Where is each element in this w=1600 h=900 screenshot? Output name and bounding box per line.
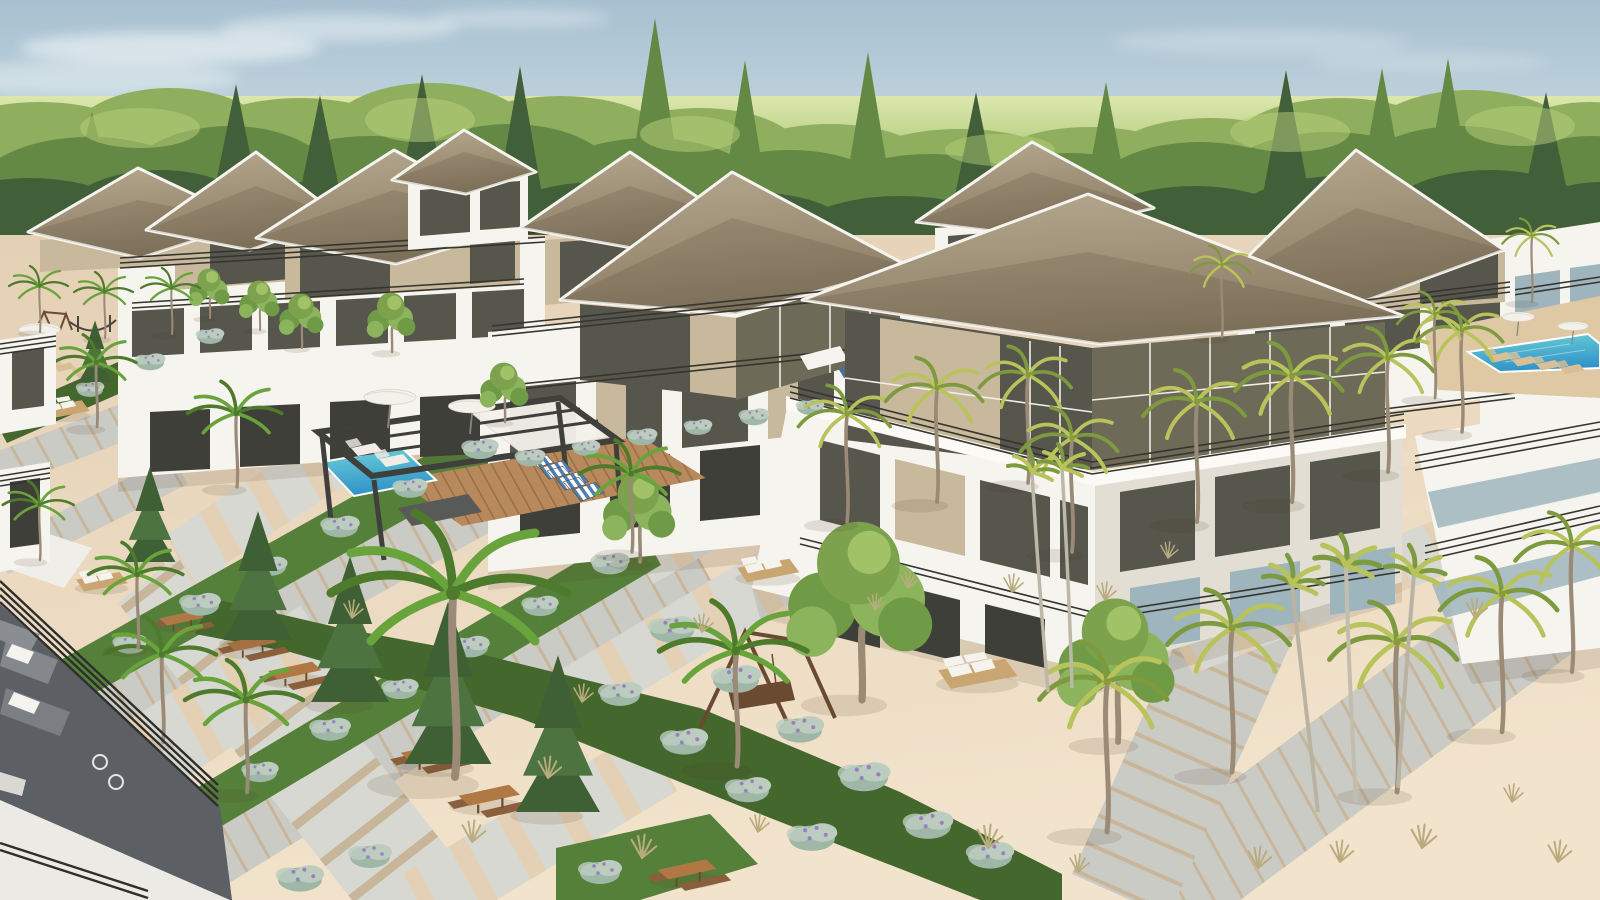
- resort-rendering: Aerial 3D architectural rendering of a t…: [0, 0, 1600, 900]
- render-canvas: Aerial 3D architectural rendering of a t…: [0, 0, 1600, 900]
